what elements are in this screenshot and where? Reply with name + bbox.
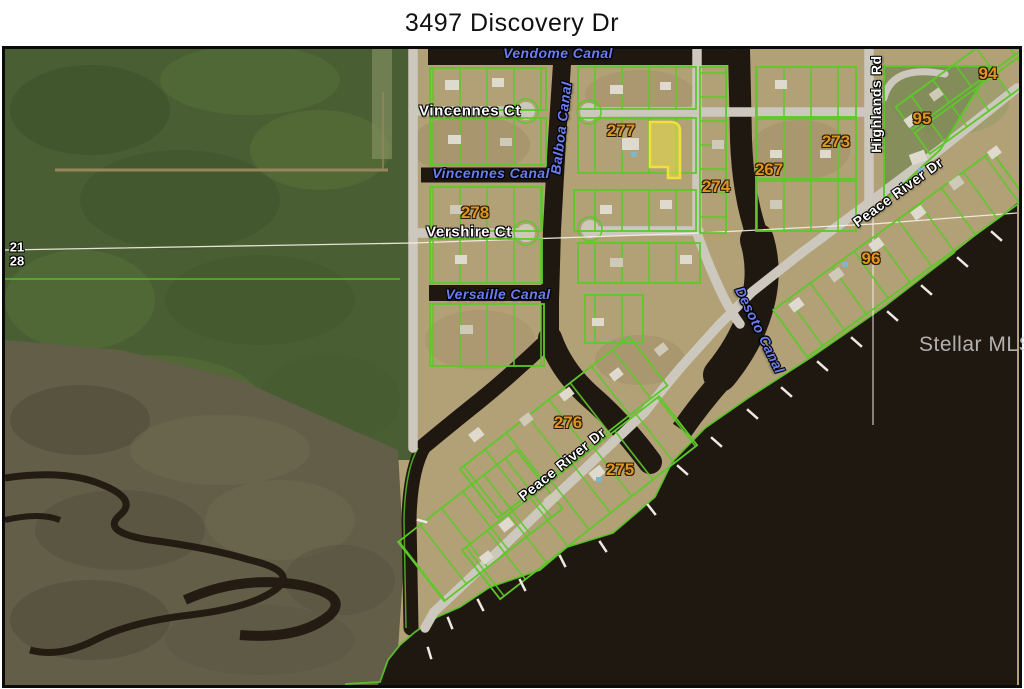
listing-map-screenshot: 3497 Discovery Dr bbox=[0, 0, 1024, 689]
listing-map-image bbox=[2, 46, 1022, 688]
aerial-map-graphic bbox=[5, 49, 1019, 685]
listing-title-bar: 3497 Discovery Dr bbox=[0, 0, 1024, 46]
page-title: 3497 Discovery Dr bbox=[405, 9, 619, 38]
